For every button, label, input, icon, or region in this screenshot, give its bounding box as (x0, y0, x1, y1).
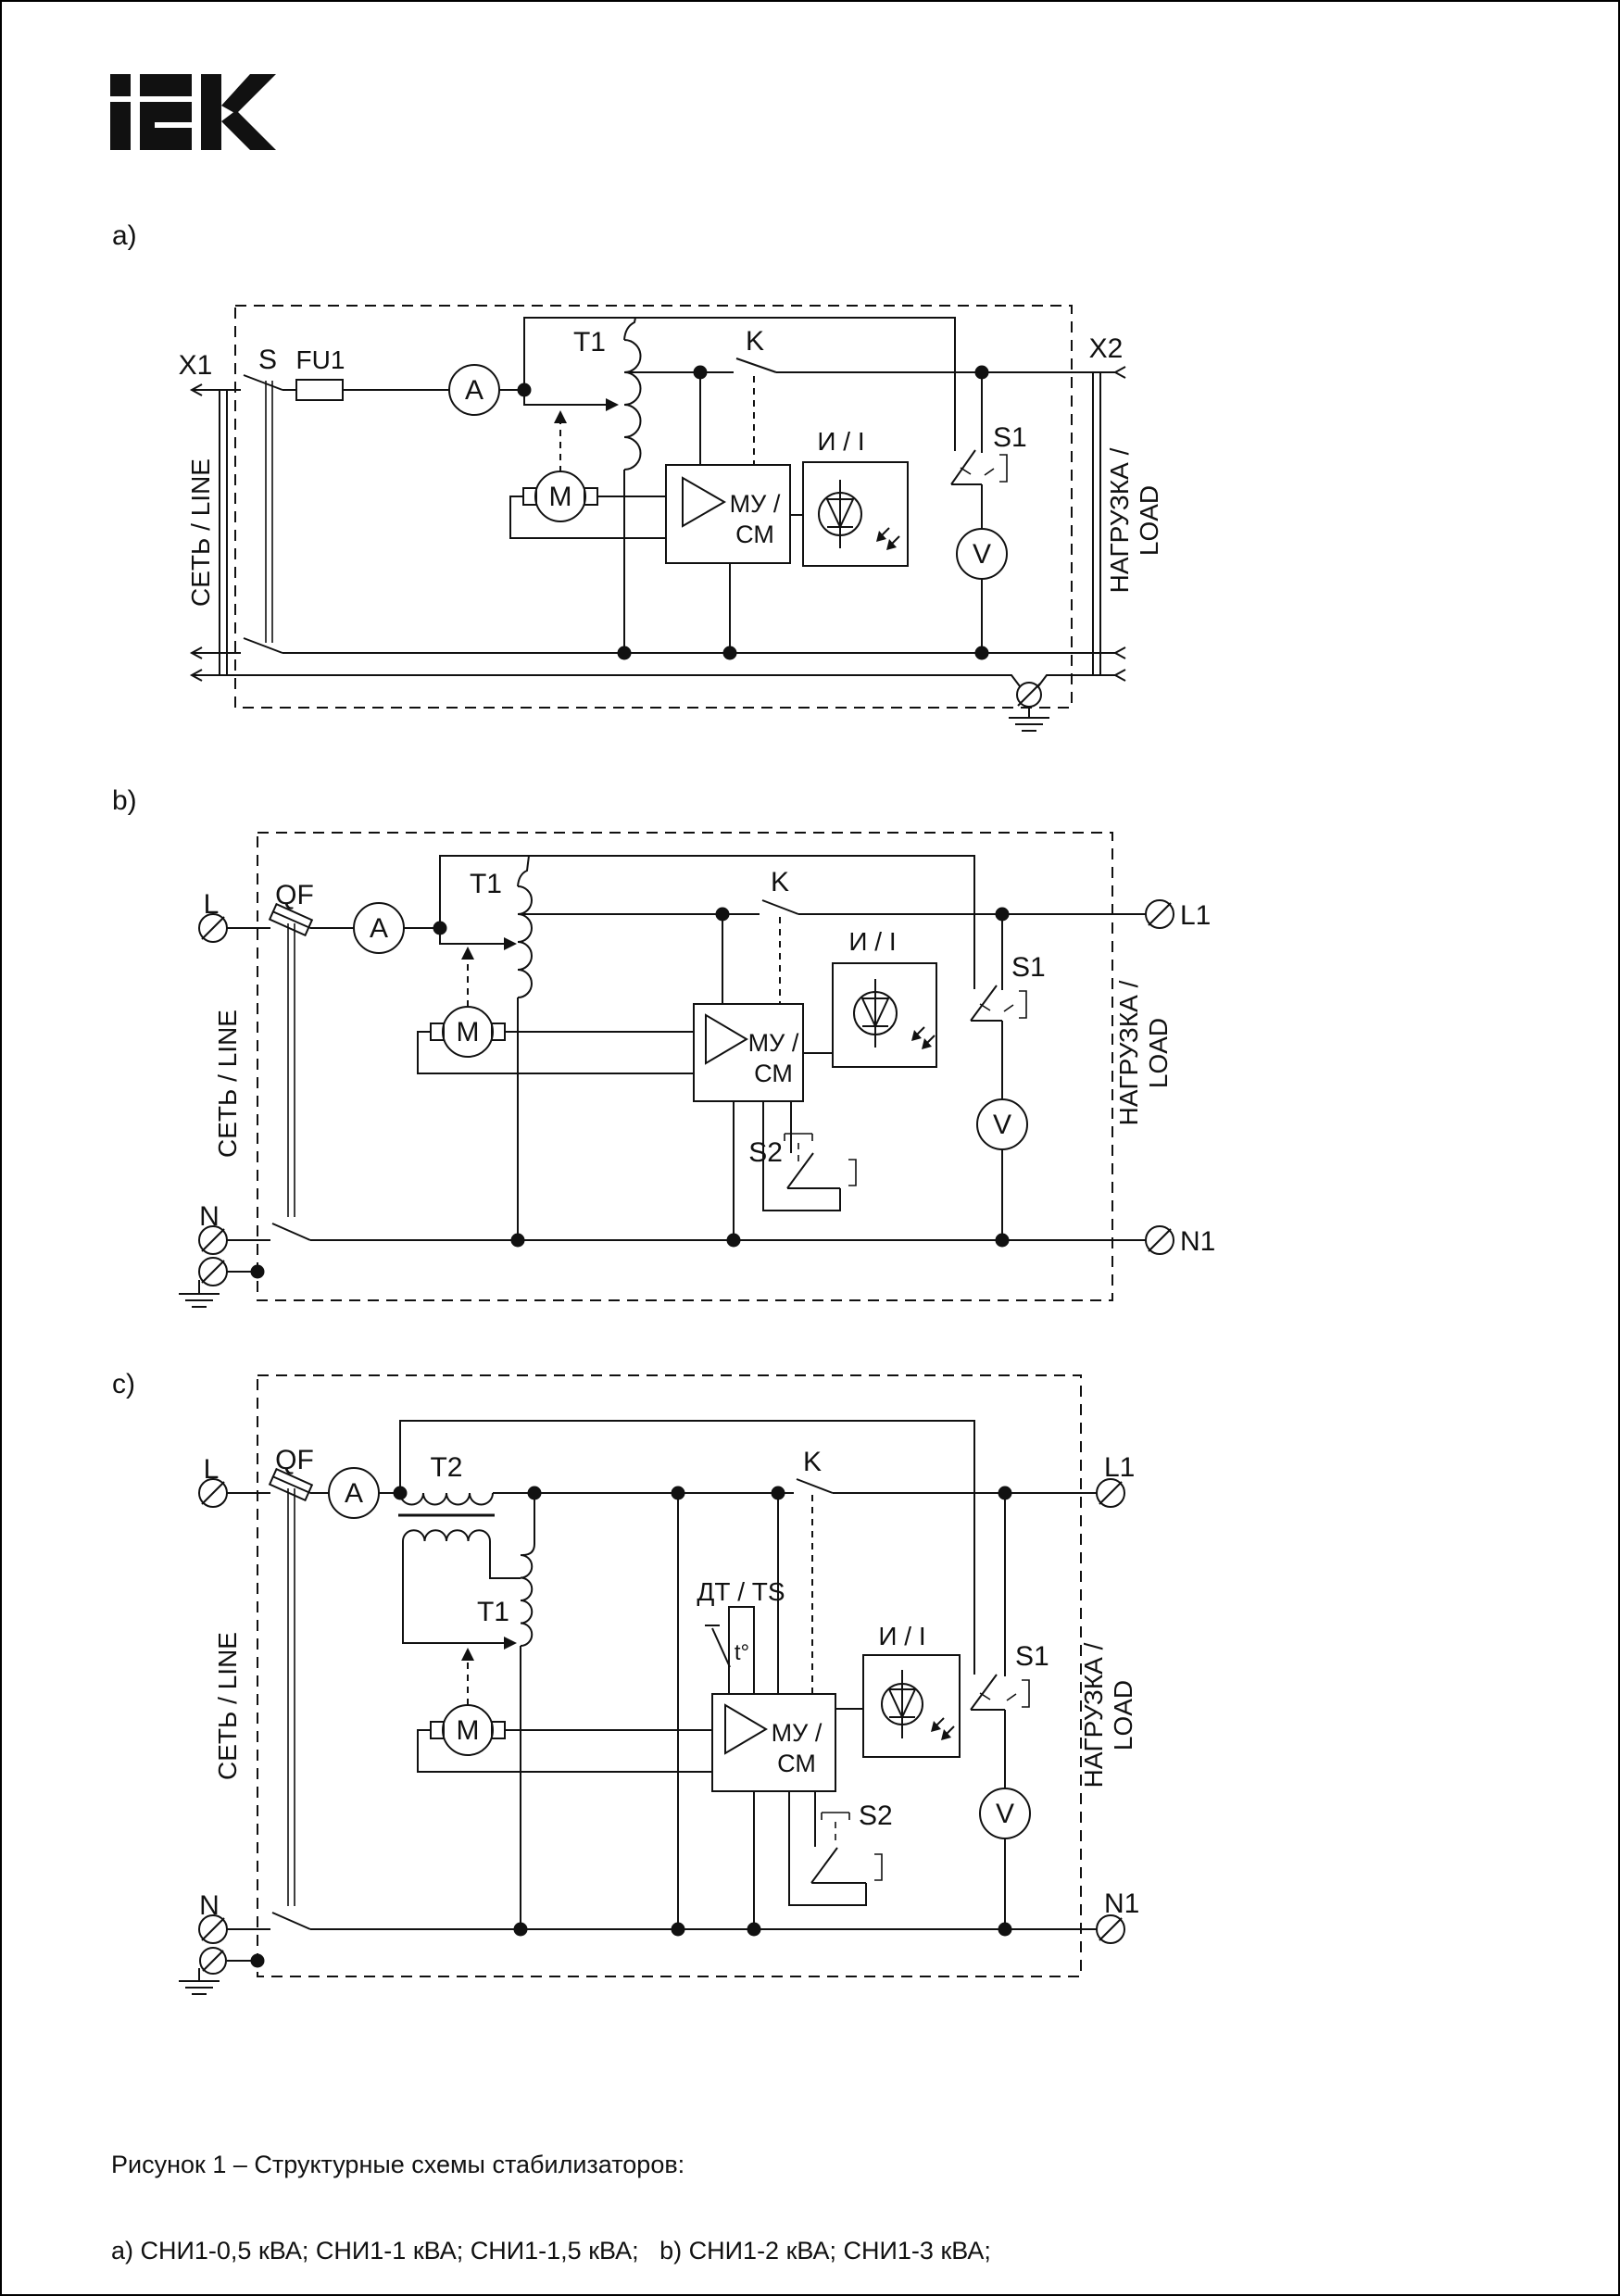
motor-m-a: M (523, 410, 597, 521)
k-b-label: K (771, 867, 789, 897)
t1-a-label: T1 (573, 327, 606, 358)
earth-icon (1009, 718, 1049, 731)
switch-s: S (244, 345, 283, 653)
t1-b-label: T1 (470, 869, 502, 899)
control-unit-b-line1: МУ / (748, 1029, 799, 1057)
iek-logo (110, 74, 276, 150)
motor-arrow-icon (554, 410, 567, 423)
breaker-qf-b: QF (270, 880, 314, 1240)
terminal-x1-label: X1 (179, 350, 213, 381)
enclosure-border-a (235, 306, 1072, 708)
diagram-a-label: a) (112, 220, 137, 251)
indicator-b-label: И / I (848, 927, 896, 956)
junction-dots-c (394, 1487, 1012, 1937)
terminal-l-c: L (199, 1454, 227, 1507)
contactor-k-a: K (736, 326, 776, 372)
l-b-label: L (204, 889, 220, 920)
t-sensor-label: t° (735, 1640, 749, 1665)
ground-terminal-c (179, 1948, 265, 1994)
selector-s1-b: S1 (971, 952, 1046, 1021)
manual-page: a) S FU1 A T1 (0, 0, 1620, 2296)
line-side-label-b: СЕТЬ / LINE (213, 1010, 242, 1158)
load-side-label-b-2: LOAD (1144, 1018, 1173, 1088)
motor-m-c: M (431, 1648, 505, 1755)
dt-label: ДТ / TS (697, 1577, 785, 1606)
voltmeter-b: V (977, 1099, 1027, 1149)
terminal-n-c: N (199, 1890, 227, 1943)
control-unit-c-line2: СМ (777, 1750, 816, 1777)
qf-c-label: QF (275, 1445, 314, 1475)
indicator-c-label: И / I (878, 1622, 925, 1650)
s1-b-label: S1 (1011, 952, 1046, 983)
pushbutton-s2-b: S2 (748, 1134, 856, 1188)
selector-s1-c: S1 (971, 1641, 1049, 1710)
fuse-fu1-label: FU1 (296, 345, 345, 374)
caption-line-2: a) СНИ1-0,5 кВА; СНИ1-1 кВА; СНИ1-1,5 кВ… (111, 2237, 1108, 2265)
wiper-arrow-icon (504, 1637, 517, 1650)
autotransformer-t1-b: T1 (470, 856, 532, 997)
control-unit-c: МУ / СМ (712, 1495, 835, 1791)
s2-c-label: S2 (859, 1800, 893, 1831)
s1-c-label: S1 (1015, 1641, 1049, 1672)
voltmeter-c: V (980, 1788, 1030, 1838)
booster-transformer-t2: T2 (400, 1452, 493, 1541)
control-unit-a-line2: СМ (735, 521, 774, 548)
s1-a-label: S1 (993, 422, 1027, 453)
terminal-l1-c: L1 (1097, 1452, 1135, 1507)
terminal-n1-c: N1 (1097, 1888, 1139, 1943)
load-side-label-c-2: LOAD (1109, 1680, 1137, 1750)
voltmeter-b-letter: V (993, 1110, 1011, 1140)
control-unit-b-line2: СМ (754, 1060, 793, 1087)
selector-s1-a: S1 (951, 422, 1027, 484)
s2-b-label: S2 (748, 1137, 783, 1168)
breaker-qf-c: QF (270, 1445, 314, 1929)
ammeter-a: A (449, 365, 499, 415)
thermal-sensor-dt: ДТ / TS t° (697, 1577, 785, 1694)
control-unit-a: МУ / СМ (666, 376, 790, 563)
n-b-label: N (199, 1201, 220, 1232)
k-c-label: K (803, 1447, 822, 1477)
voltmeter-c-letter: V (996, 1799, 1014, 1829)
voltmeter-a-letter: V (973, 539, 991, 570)
diagram-b-label: b) (112, 785, 137, 816)
enclosure-border-b (257, 833, 1112, 1300)
k-a-label: K (746, 326, 764, 357)
l1-b-label: L1 (1180, 900, 1211, 931)
autotransformer-t1-c: T1 (477, 1544, 534, 1650)
ammeter-a-letter: A (465, 375, 483, 406)
control-unit-c-line1: МУ / (772, 1719, 823, 1747)
line-side-label-a: СЕТЬ / LINE (186, 458, 215, 607)
motor-m-b: M (431, 947, 505, 1057)
n-c-label: N (199, 1890, 220, 1921)
figure-schematics: a) S FU1 A T1 (2, 2, 1620, 2296)
wiper-arrow-icon (606, 398, 619, 411)
earth-icon (179, 1280, 220, 1307)
load-side-label-b-1: НАГРУЗКА / (1114, 980, 1143, 1125)
diagram-a: a) S FU1 A T1 (112, 220, 1163, 731)
switch-s-label: S (258, 345, 277, 375)
ammeter-b-letter: A (370, 913, 388, 944)
indicator-a-label: И / I (817, 427, 864, 456)
junction-dots-b (433, 908, 1010, 1248)
contactor-k-b: K (762, 867, 798, 914)
indicator-a: И / I (803, 427, 908, 566)
load-side-label-a-1: НАГРУЗКА / (1105, 447, 1134, 593)
control-unit-a-line1: МУ / (730, 490, 781, 518)
diagram-c: c) L N QF A (112, 1369, 1139, 1994)
pushbutton-s2-c: S2 (811, 1800, 893, 1883)
control-unit-b: МУ / СМ (694, 917, 803, 1101)
n1-c-label: N1 (1104, 1888, 1139, 1919)
line-side-label-c: СЕТЬ / LINE (213, 1632, 242, 1780)
motor-m-a-letter: M (549, 482, 572, 512)
enclosure-border-c (257, 1375, 1081, 1976)
ammeter-c: A (329, 1468, 379, 1518)
n1-b-label: N1 (1180, 1226, 1215, 1257)
ground-terminal-b (179, 1258, 265, 1307)
voltmeter-a: V (957, 529, 1007, 579)
motor-m-c-letter: M (457, 1715, 480, 1746)
caption-line-1: Рисунок 1 – Структурные схемы стабилизат… (111, 2151, 1108, 2179)
terminal-n-b: N (199, 1201, 227, 1254)
t2-label: T2 (430, 1452, 462, 1483)
motor-m-b-letter: M (457, 1017, 480, 1048)
ammeter-b: A (354, 903, 404, 953)
l1-c-label: L1 (1104, 1452, 1135, 1483)
diagram-c-label: c) (112, 1369, 135, 1399)
qf-b-label: QF (275, 880, 314, 910)
terminal-l1-b: L1 (1146, 900, 1211, 931)
terminal-n1-b: N1 (1146, 1226, 1215, 1257)
autotransformer-t1-a: T1 (573, 318, 641, 470)
indicator-b: И / I (833, 927, 936, 1067)
terminal-l-b: L (199, 889, 227, 942)
load-side-label-c-1: НАГРУЗКА / (1079, 1642, 1108, 1788)
l-c-label: L (204, 1454, 220, 1485)
indicator-c: И / I (863, 1622, 960, 1757)
terminal-x2-label: X2 (1089, 333, 1124, 364)
fuse-fu1: FU1 (296, 345, 345, 400)
load-side-label-a-2: LOAD (1135, 485, 1163, 556)
w wiper-arrow-icon (504, 937, 517, 950)
figure-caption: Рисунок 1 – Структурные схемы стабилизат… (111, 2093, 1108, 2296)
t1-c-label: T1 (477, 1597, 509, 1627)
earth-icon (179, 1968, 220, 1994)
diagram-b: b) L N QF A (112, 785, 1215, 1307)
ammeter-c-letter: A (345, 1478, 363, 1509)
contactor-k-c: K (797, 1447, 833, 1493)
wires-b (227, 856, 1146, 1272)
